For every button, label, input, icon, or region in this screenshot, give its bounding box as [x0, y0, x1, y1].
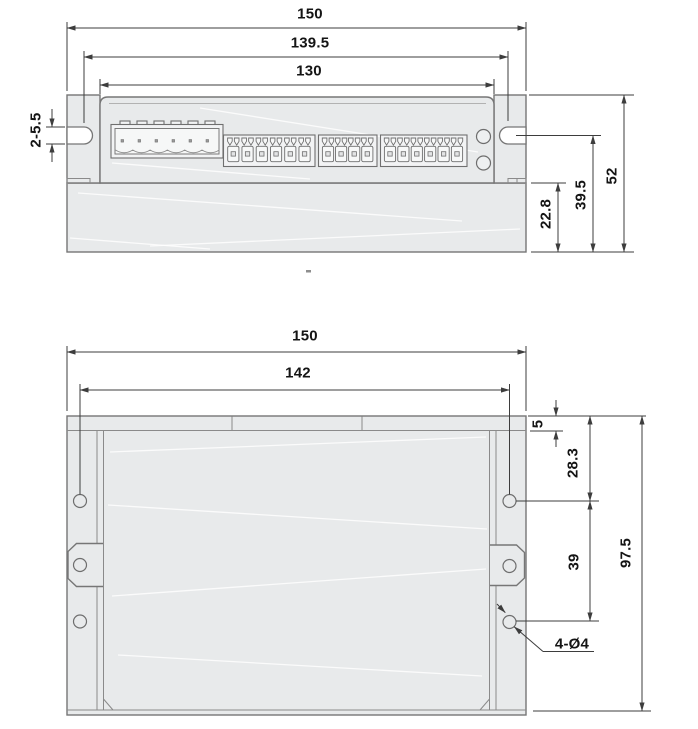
dim-front-slot-spec: 2-5.5 — [28, 112, 45, 147]
terminal-pin — [172, 140, 175, 143]
dim-front-slot-height: 39.5 — [573, 180, 590, 210]
terminal-pin — [206, 140, 209, 143]
dim-top-overall-width: 150 — [292, 328, 318, 345]
mount-hole — [503, 495, 516, 508]
terminal-pin — [189, 140, 192, 143]
signal-terminal-block-2 — [319, 135, 378, 167]
dim-front-slot-span: 139.5 — [291, 35, 330, 52]
mount-hole — [74, 615, 87, 628]
dim-front-overall-width: 150 — [297, 6, 323, 23]
dim-top-hole-offset: 28.3 — [565, 448, 582, 478]
dim-front-base-height: 22.8 — [538, 199, 555, 229]
front-heatsink-base — [67, 183, 526, 252]
mount-hole — [74, 559, 87, 572]
dim-top-hole-pitch: 39 — [566, 553, 583, 570]
separator-mark — [306, 270, 311, 273]
led-indicator-bottom — [477, 156, 491, 170]
dim-front-body-width: 130 — [296, 63, 322, 80]
terminal-pin — [155, 140, 158, 143]
terminal-pin — [121, 140, 124, 143]
drawing-linework — [0, 0, 698, 729]
signal-terminal-block-3 — [381, 135, 468, 167]
mount-hole — [503, 560, 516, 573]
power-screw-terminal — [111, 121, 223, 158]
top-view — [67, 346, 651, 715]
dim-front-overall-height: 52 — [604, 167, 621, 184]
mount-hole — [74, 495, 87, 508]
mount-hole — [503, 616, 516, 629]
dimension-drawing: 150 139.5 130 2-5.5 52 39.5 22.8 150 142… — [0, 0, 698, 729]
terminal-pin — [138, 140, 141, 143]
dim-top-hole-span: 142 — [285, 365, 311, 382]
dim-top-end-step: 5 — [530, 420, 547, 429]
top-body-outline — [67, 416, 526, 715]
dim-top-hole-callout: 4-Ø4 — [555, 636, 589, 653]
signal-terminal-block-1 — [224, 135, 316, 167]
dim-top-overall-depth: 97.5 — [618, 538, 635, 568]
led-indicator-top — [477, 130, 491, 144]
front-mount-slot-left — [67, 127, 93, 144]
